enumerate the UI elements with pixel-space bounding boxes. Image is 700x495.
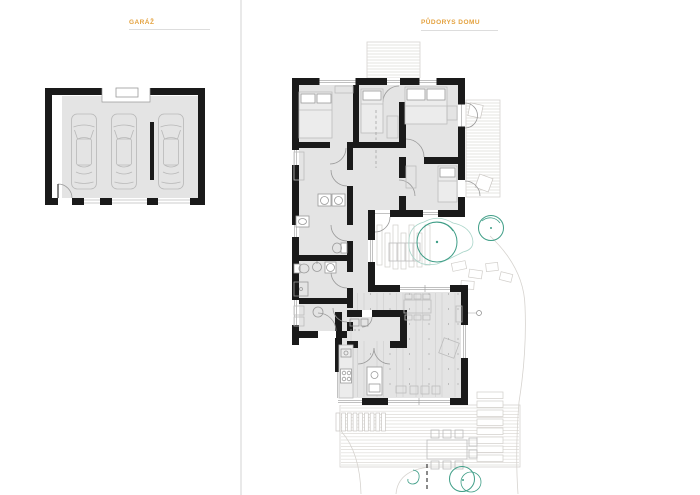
window: [368, 240, 375, 262]
sliding-glass-door: [400, 285, 450, 292]
garage-roof-recess: [102, 88, 150, 102]
bed-icon: [299, 92, 332, 138]
stove-icon: [341, 369, 352, 383]
top-deck: [367, 42, 420, 78]
window: [423, 210, 438, 217]
washer-icon: [325, 262, 336, 273]
drawing-sheet: GARÁŽ PŮDORYS DOMU: [0, 0, 700, 495]
tree-icon: [417, 222, 457, 262]
deck-cushion-icon: [468, 103, 483, 118]
garage-door-openings: [84, 200, 190, 203]
bed-icon: [405, 87, 447, 124]
house-plan: [292, 42, 525, 494]
garage-interior-wall: [150, 122, 154, 180]
window: [418, 78, 438, 85]
plan-drawing: [0, 0, 700, 495]
window: [338, 398, 362, 405]
downspout-icon: [468, 311, 482, 316]
patio: [377, 225, 513, 289]
washer-icon: [318, 194, 331, 206]
sink-icon: [296, 216, 309, 227]
bed-icon: [361, 89, 383, 133]
window: [292, 300, 299, 325]
shrub-curl-icon: [408, 470, 419, 484]
window: [318, 78, 357, 85]
garage-plan: [45, 88, 205, 205]
pergola-slats: [336, 413, 385, 431]
sliding-glass-door: [388, 398, 450, 405]
kitchen-island-icon: [367, 367, 382, 395]
bed-icon: [438, 166, 457, 202]
dryer-icon: [332, 194, 345, 206]
window: [387, 78, 400, 85]
window: [461, 325, 468, 358]
tree-icon: [450, 467, 482, 493]
